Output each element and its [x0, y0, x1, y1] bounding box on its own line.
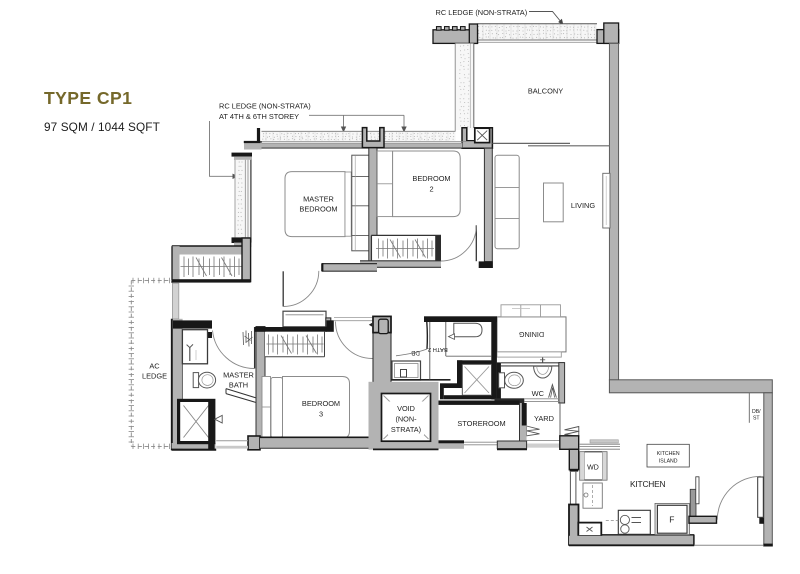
svg-text:WC: WC — [532, 389, 545, 398]
svg-text:TYPE CP1: TYPE CP1 — [44, 88, 132, 108]
svg-text:BEDROOM: BEDROOM — [412, 174, 450, 183]
svg-text:BEDROOM: BEDROOM — [299, 205, 337, 214]
svg-text:VOID: VOID — [397, 404, 415, 413]
svg-text:AC: AC — [149, 362, 160, 371]
svg-text:KITCHEN: KITCHEN — [630, 479, 666, 489]
svg-text:(NON-: (NON- — [395, 415, 417, 424]
svg-text:RC LEDGE (NON-STRATA): RC LEDGE (NON-STRATA) — [436, 8, 528, 17]
svg-text:2: 2 — [429, 185, 433, 194]
svg-text:STRATA): STRATA) — [391, 425, 421, 434]
svg-text:BEDROOM: BEDROOM — [302, 399, 340, 408]
svg-text:F: F — [669, 515, 674, 525]
svg-text:RC LEDGE (NON-STRATA): RC LEDGE (NON-STRATA) — [219, 101, 311, 110]
svg-text:BALCONY: BALCONY — [528, 87, 563, 96]
svg-text:WD: WD — [587, 465, 599, 472]
svg-text:LEDGE: LEDGE — [142, 372, 167, 381]
svg-text:AT 4TH & 6TH STOREY: AT 4TH & 6TH STOREY — [219, 112, 299, 121]
svg-text:DINING: DINING — [519, 330, 545, 339]
svg-text:DB/: DB/ — [752, 409, 761, 415]
svg-text:YARD: YARD — [534, 414, 554, 423]
svg-text:BATH: BATH — [229, 380, 248, 389]
svg-text:ST: ST — [753, 416, 760, 422]
svg-text:97 SQM / 1044 SQFT: 97 SQM / 1044 SQFT — [44, 120, 160, 134]
svg-text:STOREROOM: STOREROOM — [457, 419, 505, 428]
svg-text:LIVING: LIVING — [571, 201, 595, 210]
svg-text:MASTER: MASTER — [223, 371, 254, 380]
svg-text:MASTER: MASTER — [303, 195, 334, 204]
svg-text:BATH 2: BATH 2 — [428, 346, 448, 352]
svg-text:ISLAND: ISLAND — [659, 459, 678, 465]
svg-text:KITCHEN: KITCHEN — [657, 451, 680, 457]
svg-text:3: 3 — [319, 410, 323, 419]
